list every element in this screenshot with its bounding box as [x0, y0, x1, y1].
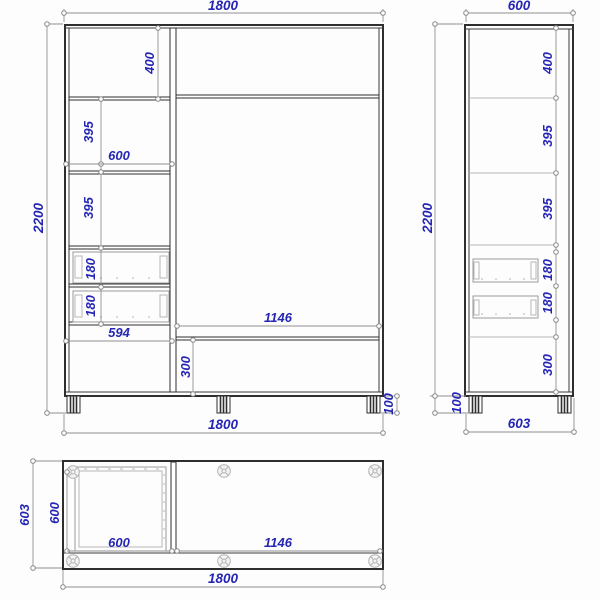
top-view: 603 600 600 1146 1800: [17, 459, 385, 590]
side-cabinet-outline: [465, 25, 573, 396]
leg-fitting-circle: [67, 555, 80, 568]
dim-label: 600: [108, 535, 130, 550]
leg-fitting-circle: [218, 555, 231, 568]
dim-front-leg-height: 100: [381, 392, 399, 415]
dim-label: 180: [83, 257, 98, 279]
front-shelf: [69, 246, 170, 249]
leg-fitting-circle: [218, 465, 231, 478]
wardrobe-drawing: 1800 2200 400 395 395 180 180 600: [0, 0, 600, 600]
dim-front-left-width: 600: [64, 148, 175, 166]
dim-label: 180: [540, 291, 555, 313]
dim-label: 600: [108, 148, 130, 163]
side-drawer-1: [473, 259, 538, 282]
dim-front-width-top: 1800: [62, 0, 386, 22]
side-leg-front: [469, 396, 482, 413]
dim-label: 300: [540, 353, 555, 375]
dim-label: 2200: [420, 202, 435, 234]
dim-label: 1146: [264, 310, 293, 325]
dim-label: 594: [108, 325, 130, 340]
dim-front-width-bottom: 1800: [62, 414, 386, 436]
dim-label: 395: [540, 197, 555, 219]
dim-label: 400: [142, 51, 157, 74]
dim-label: 1800: [208, 571, 239, 586]
leg-fitting-circle: [369, 555, 382, 568]
dim-label: 603: [17, 503, 32, 525]
dim-label: 180: [540, 258, 555, 280]
dim-label: 100: [449, 391, 464, 413]
front-shelf: [176, 95, 379, 98]
dim-label: 395: [81, 120, 96, 142]
drawing-canvas: 1800 2200 400 395 395 180 180 600: [0, 0, 600, 600]
front-leg-left: [67, 396, 80, 413]
dim-label: 400: [540, 51, 555, 74]
front-shelf: [69, 97, 170, 100]
dim-side-depth-top: 600: [464, 0, 576, 22]
front-shelf: [69, 284, 170, 287]
dim-side-height: 2200 100: [420, 22, 470, 416]
front-partition: [170, 28, 176, 392]
side-leg-back: [558, 396, 571, 413]
dim-label: 600: [47, 501, 62, 523]
dim-top-depth-inner: 600: [47, 470, 69, 554]
dim-label: 300: [178, 355, 193, 377]
dim-label: 2200: [31, 202, 46, 234]
side-drawer-2: [473, 296, 538, 318]
dim-label: 180: [83, 294, 98, 316]
dim-label: 1800: [208, 0, 239, 13]
dim-label: 1146: [264, 535, 293, 550]
dim-front-left-chain: 395 395 180 180: [81, 97, 103, 327]
side-view: 600 2200 100 400 395 395 180 180 300: [420, 0, 576, 435]
dim-front-top-section: 400: [142, 26, 160, 102]
dim-top-width: 1800: [61, 570, 386, 589]
dim-front-bottom-left-width: 594: [64, 325, 175, 343]
front-shelf: [69, 171, 170, 174]
dim-side-right-chain: 400 395 395 180 180 300: [540, 26, 558, 395]
dim-label: 395: [540, 124, 555, 146]
front-shelf: [176, 337, 379, 340]
leg-fitting-circle: [369, 465, 382, 478]
front-leg-middle: [217, 396, 230, 413]
dim-label: 1800: [208, 417, 239, 432]
dim-front-height: 2200: [31, 22, 66, 416]
dim-label: 600: [508, 0, 531, 13]
front-leg-right: [367, 396, 380, 413]
dim-front-opening-width: 1146: [175, 310, 382, 328]
dim-label: 395: [81, 196, 96, 218]
dim-label: 100: [381, 392, 396, 414]
dim-label: 603: [508, 416, 531, 431]
front-view: 1800 2200 400 395 395 180 180 600: [31, 0, 399, 436]
top-partition: [171, 462, 176, 553]
dim-front-bottom-section: 300: [178, 338, 195, 397]
dim-top-left-width: 600: [67, 535, 174, 553]
dim-top-opening-width: 1146: [175, 535, 383, 553]
